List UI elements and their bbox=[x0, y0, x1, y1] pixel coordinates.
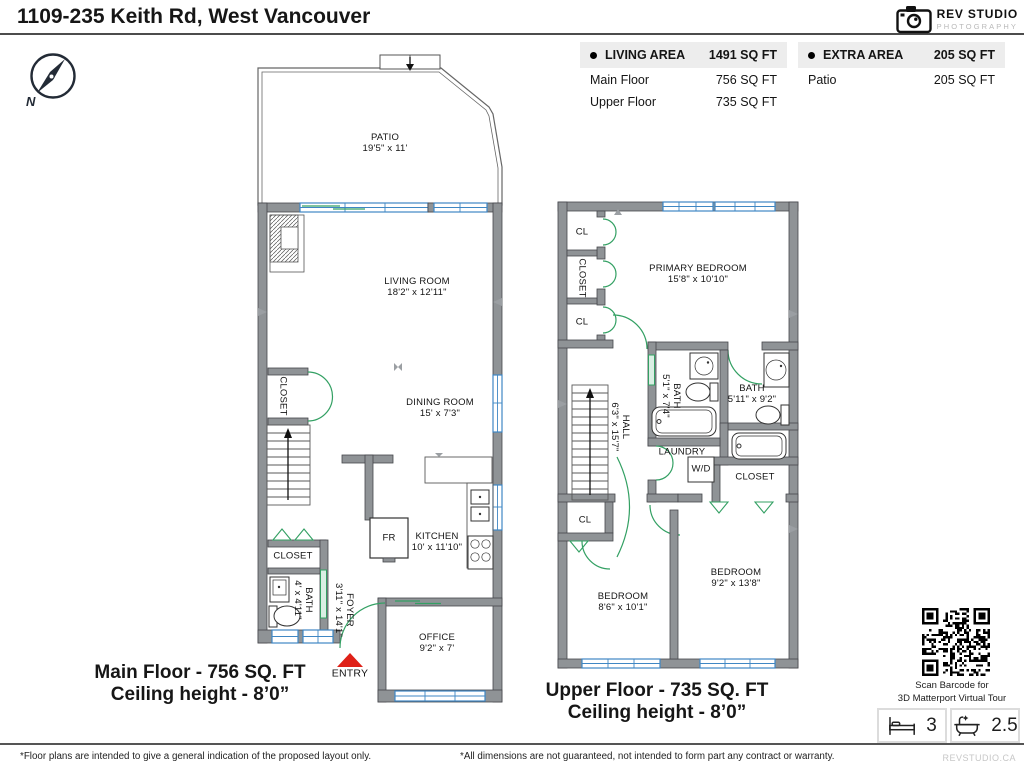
room-label-laundry: LAUNDRY bbox=[659, 447, 706, 458]
room-label-bath1: BATH5'1" x 7'4" bbox=[660, 374, 682, 418]
footer-brand: REVSTUDIO.CA bbox=[942, 753, 1016, 763]
bath-icon bbox=[952, 713, 982, 738]
row-label: Main Floor bbox=[590, 73, 649, 87]
page-title: 1109-235 Keith Rd, West Vancouver bbox=[17, 5, 370, 29]
row-value: 205 SQ FT bbox=[934, 73, 995, 87]
living-area-total: 1491 SQ FT bbox=[709, 48, 777, 62]
room-label-cl2: CL bbox=[576, 317, 589, 328]
bed-icon bbox=[887, 713, 917, 738]
room-label-closet-vertical: CLOSET bbox=[577, 258, 588, 297]
extra-area-total: 205 SQ FT bbox=[934, 48, 995, 62]
room-label-hall: HALL6'3" x 15'7" bbox=[609, 402, 631, 451]
extra-area-label: EXTRA AREA bbox=[823, 48, 903, 62]
table-row: Upper Floor 735 SQ FT bbox=[580, 92, 787, 112]
room-label-dining-room: DINING ROOM15' x 7'3" bbox=[406, 397, 474, 419]
living-area-table: LIVING AREA 1491 SQ FT Main Floor 756 SQ… bbox=[580, 42, 787, 112]
floor-plan-page: { "title": "1109-235 Keith Rd, West Vanc… bbox=[0, 0, 1024, 768]
room-label-washer-dryer: W/D bbox=[691, 464, 710, 475]
room-label-kitchen: KITCHEN10' x 11'10" bbox=[412, 531, 462, 553]
room-label-office: OFFICE9'2" x 7' bbox=[419, 632, 455, 654]
room-label-closet-lower: CLOSET bbox=[273, 551, 312, 562]
living-area-header: LIVING AREA 1491 SQ FT bbox=[580, 42, 787, 68]
upper-floor-caption: Upper Floor - 735 SQ. FTCeiling height -… bbox=[487, 680, 827, 723]
extra-area-header: EXTRA AREA 205 SQ FT bbox=[798, 42, 1005, 68]
logo-name: REV STUDIO bbox=[937, 7, 1018, 21]
title-divider bbox=[0, 33, 1024, 35]
table-row: Main Floor 756 SQ FT bbox=[580, 70, 787, 90]
room-label-closet: CLOSET bbox=[735, 472, 774, 483]
qr-caption: Scan Barcode for3D Matterport Virtual To… bbox=[872, 679, 1024, 705]
extra-area-table: EXTRA AREA 205 SQ FT Patio 205 SQ FT bbox=[798, 42, 1005, 90]
qr-code bbox=[922, 608, 990, 676]
room-label-living-room: LIVING ROOM18'2" x 12'11" bbox=[384, 276, 450, 298]
room-label-patio: PATIO19'5" x 11' bbox=[363, 132, 408, 154]
room-label-bath: BATH4' x 4'11" bbox=[292, 580, 314, 619]
room-label-cl3: CL bbox=[579, 515, 592, 526]
camera-icon bbox=[896, 4, 932, 34]
row-value: 756 SQ FT bbox=[716, 73, 777, 87]
room-label-foyer: FOYER3'11" x 14'1" bbox=[333, 583, 355, 637]
compass-north-label: N bbox=[26, 94, 35, 109]
bath-count-box: 2.5 bbox=[950, 708, 1020, 743]
row-label: Upper Floor bbox=[590, 95, 656, 109]
room-label-closet-upper: CLOSET bbox=[278, 376, 289, 415]
room-label-bedroom1: BEDROOM8'6" x 10'1" bbox=[598, 591, 649, 613]
row-label: Patio bbox=[808, 73, 837, 87]
bed-count-box: 3 bbox=[877, 708, 947, 743]
footer-disclaimer-center: *All dimensions are not guaranteed, not … bbox=[460, 751, 834, 762]
footer-divider bbox=[0, 743, 1024, 745]
room-label-primary-bedroom: PRIMARY BEDROOM15'8" x 10'10" bbox=[649, 263, 747, 285]
bullet-icon bbox=[808, 52, 815, 59]
bath-count: 2.5 bbox=[991, 715, 1017, 737]
living-area-label: LIVING AREA bbox=[605, 48, 685, 62]
bed-count: 3 bbox=[926, 715, 937, 737]
room-label-bedroom2: BEDROOM9'2" x 13'8" bbox=[711, 567, 762, 589]
table-row: Patio 205 SQ FT bbox=[798, 70, 1005, 90]
room-label-fridge: FR bbox=[382, 533, 395, 544]
row-value: 735 SQ FT bbox=[716, 95, 777, 109]
room-label-bath2: BATH5'11" x 9'2" bbox=[728, 383, 777, 405]
main-floor-caption: Main Floor - 756 SQ. FTCeiling height - … bbox=[30, 662, 370, 705]
logo-subtitle: PHOTOGRAPHY bbox=[937, 22, 1018, 31]
footer-disclaimer-left: *Floor plans are intended to give a gene… bbox=[20, 751, 371, 762]
room-label-cl1: CL bbox=[576, 227, 589, 238]
stats-bar: 3 2.5 bbox=[877, 708, 1020, 743]
bullet-icon bbox=[590, 52, 597, 59]
brand-logo: REV STUDIO PHOTOGRAPHY bbox=[896, 4, 1018, 34]
